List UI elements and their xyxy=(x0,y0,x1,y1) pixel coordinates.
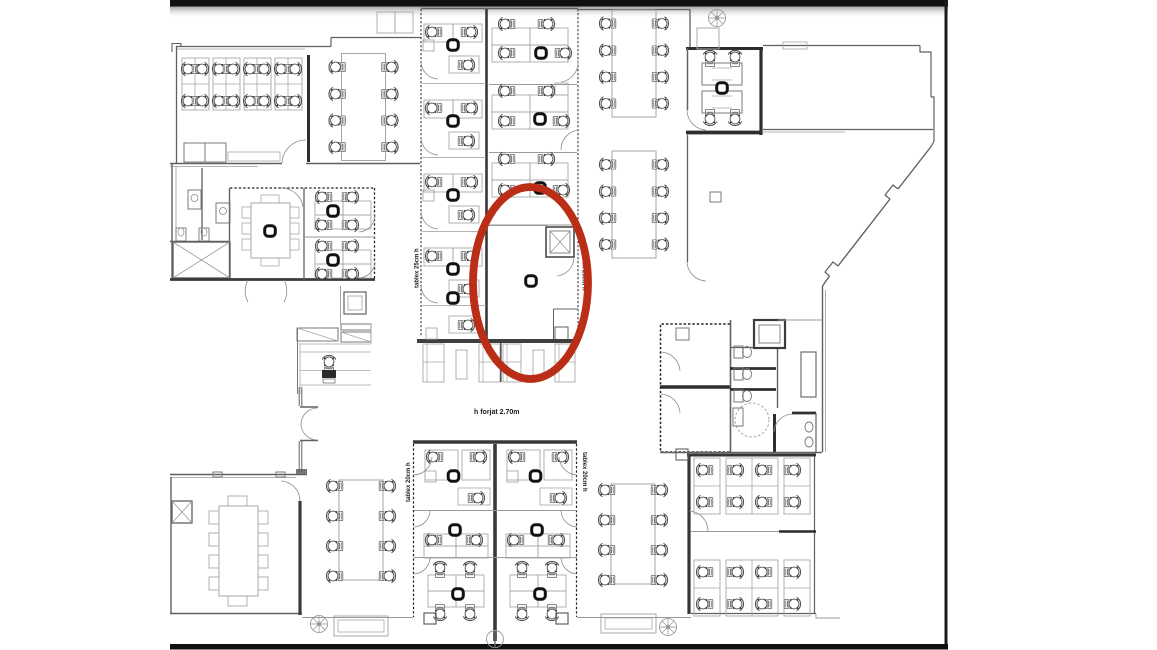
svg-text:tablex 20cm h: tablex 20cm h xyxy=(406,462,412,502)
svg-text:tablex 25cm h: tablex 25cm h xyxy=(415,248,421,288)
svg-text:h forjat 2.70m: h forjat 2.70m xyxy=(474,409,520,416)
svg-text:tablex 20cm h: tablex 20cm h xyxy=(581,452,587,492)
